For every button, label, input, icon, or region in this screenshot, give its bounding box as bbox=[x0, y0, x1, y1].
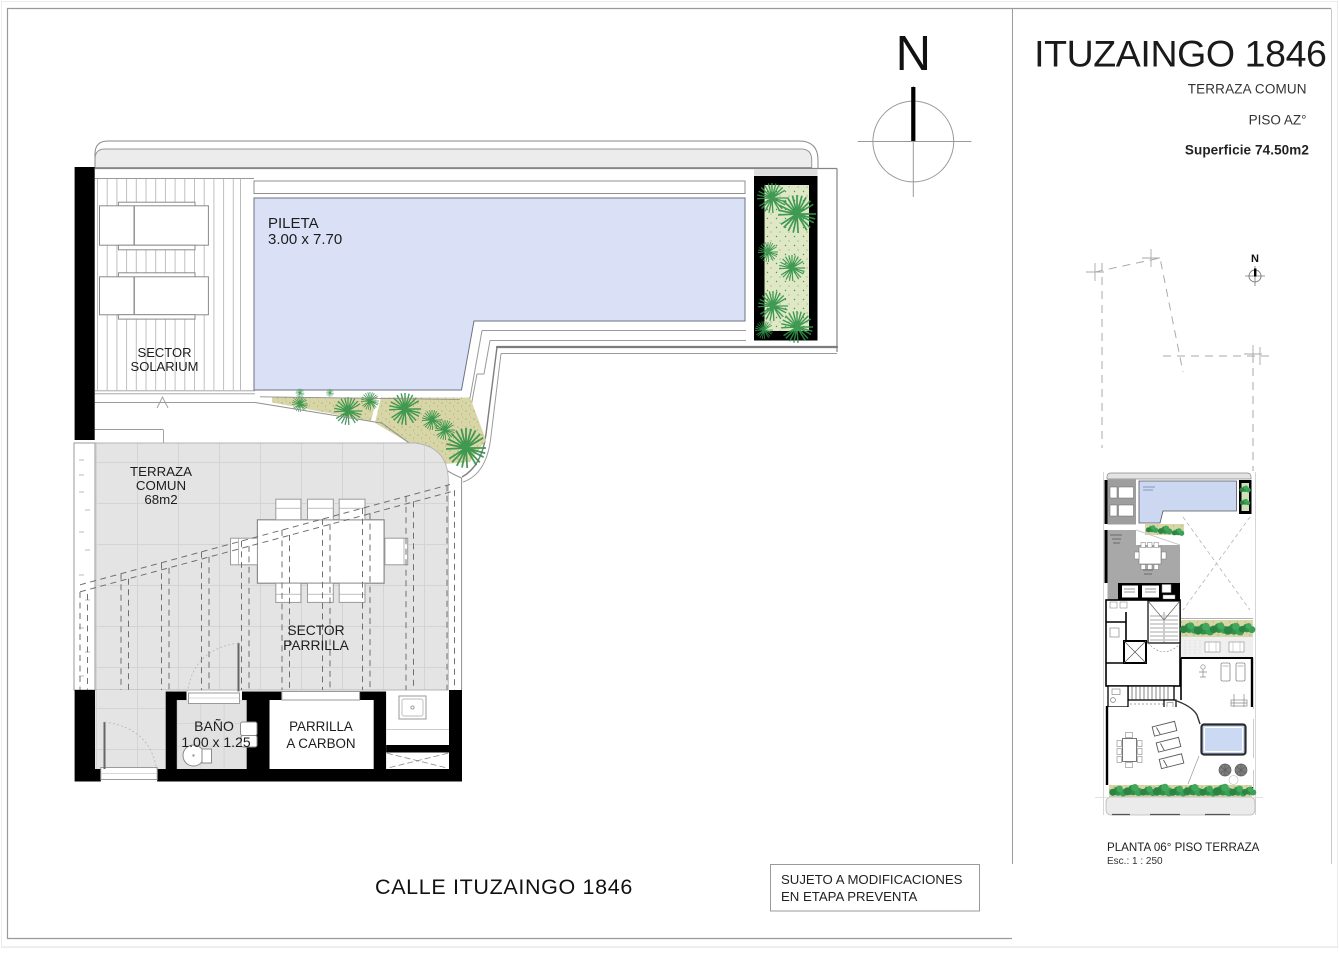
svg-text:EN ETAPA PREVENTA: EN ETAPA PREVENTA bbox=[781, 889, 918, 904]
svg-text:SUJETO A MODIFICACIONES: SUJETO A MODIFICACIONES bbox=[781, 872, 963, 887]
svg-text:CALLE ITUZAINGO 1846: CALLE ITUZAINGO 1846 bbox=[375, 875, 633, 899]
svg-text:PISO AZ°: PISO AZ° bbox=[1249, 113, 1307, 128]
svg-text:PLANTA 06° PISO TERRAZA: PLANTA 06° PISO TERRAZA bbox=[1107, 841, 1260, 854]
svg-text:COMUN: COMUN bbox=[136, 478, 186, 493]
svg-text:A CARBON: A CARBON bbox=[286, 736, 355, 751]
svg-text:Superficie 74.50m2: Superficie 74.50m2 bbox=[1185, 143, 1309, 158]
svg-text:3.00 x 7.70: 3.00 x 7.70 bbox=[268, 231, 342, 248]
svg-text:BAÑO: BAÑO bbox=[194, 718, 234, 734]
svg-text:PARRILLA: PARRILLA bbox=[283, 638, 349, 653]
svg-text:TERRAZA COMUN: TERRAZA COMUN bbox=[1188, 82, 1307, 97]
svg-text:N: N bbox=[1251, 253, 1259, 265]
svg-text:SECTOR: SECTOR bbox=[138, 345, 192, 360]
svg-text:SOLARIUM: SOLARIUM bbox=[131, 359, 199, 374]
svg-text:ITUZAINGO 1846: ITUZAINGO 1846 bbox=[1034, 33, 1326, 75]
svg-text:TERRAZA: TERRAZA bbox=[130, 464, 192, 479]
svg-text:PARRILLA: PARRILLA bbox=[289, 719, 353, 734]
svg-text:N: N bbox=[896, 27, 931, 81]
svg-text:PILETA: PILETA bbox=[268, 215, 319, 232]
svg-text:68m2: 68m2 bbox=[144, 492, 177, 507]
svg-text:Esc.: 1 : 250: Esc.: 1 : 250 bbox=[1107, 856, 1163, 867]
svg-text:1.00 x 1.25: 1.00 x 1.25 bbox=[181, 734, 250, 750]
svg-text:SECTOR: SECTOR bbox=[287, 623, 344, 638]
